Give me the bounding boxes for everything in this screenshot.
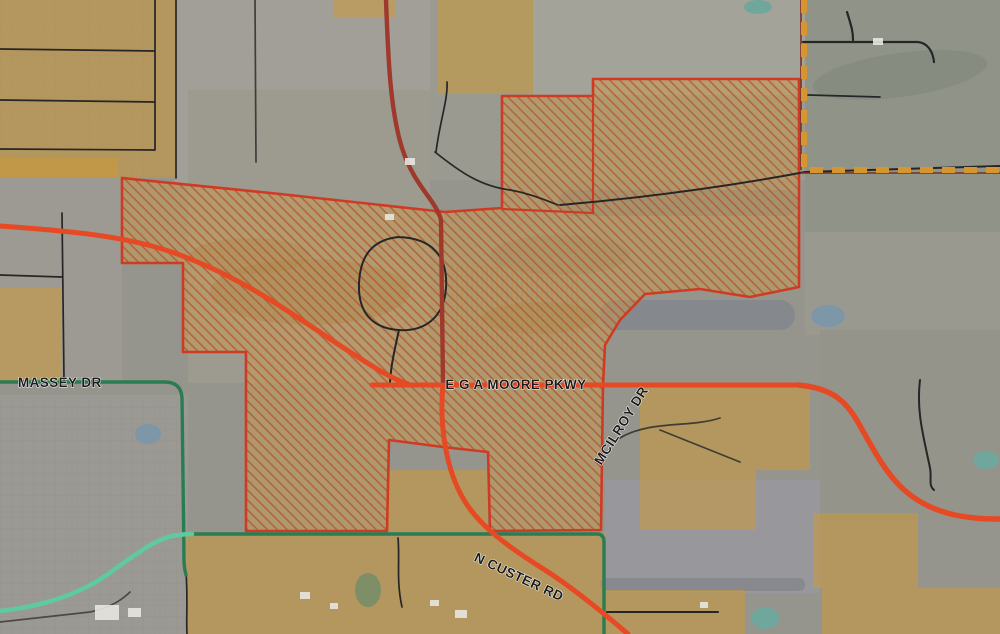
landuse-patch — [0, 0, 175, 178]
massey-dr-label: MASSEY DR — [18, 375, 102, 390]
pond — [811, 305, 845, 327]
pond — [355, 573, 381, 607]
building — [300, 592, 310, 599]
pond — [751, 607, 779, 629]
tree-line — [600, 578, 805, 591]
aerial-field — [805, 0, 1000, 232]
map-svg: MASSEY DR E G A MOORE PKWY MCILROY DR N … — [0, 0, 1000, 634]
landuse-patch — [756, 385, 810, 470]
building — [95, 605, 119, 620]
building — [430, 600, 439, 606]
building — [873, 38, 883, 45]
landuse-patch — [640, 388, 756, 530]
landuse-patch — [437, 0, 533, 94]
building — [455, 610, 467, 618]
building — [330, 603, 338, 609]
building — [700, 602, 708, 608]
map-canvas[interactable]: MASSEY DR E G A MOORE PKWY MCILROY DR N … — [0, 0, 1000, 634]
section-line — [255, 0, 256, 162]
landuse-patch — [0, 158, 118, 178]
pond — [973, 451, 999, 469]
landuse-patch — [388, 470, 488, 532]
ega-moore-pkwy-label: E G A MOORE PKWY — [445, 377, 586, 392]
building — [405, 158, 415, 165]
minor-road — [186, 572, 187, 634]
pond — [744, 0, 772, 14]
pond — [135, 424, 161, 444]
landuse-patch — [822, 588, 1000, 634]
landuse-patch — [0, 287, 62, 383]
landuse-patch — [813, 513, 918, 588]
building — [385, 214, 394, 220]
building — [128, 608, 141, 617]
